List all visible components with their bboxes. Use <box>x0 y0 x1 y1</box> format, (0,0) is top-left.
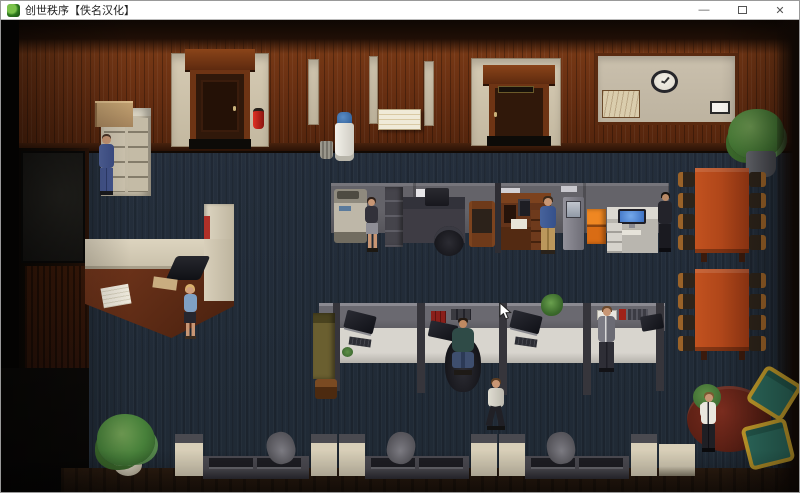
window-title: 创世秩序【佚名汉化】 <box>25 2 135 18</box>
fire-extinguisher[interactable] <box>253 108 264 129</box>
table2-leg-right <box>739 351 745 360</box>
close-button[interactable]: ✕ <box>761 1 799 19</box>
door2-knob <box>494 112 497 117</box>
npc-shoes <box>702 448 715 452</box>
npc-copier-woman[interactable] <box>362 197 382 254</box>
monitor-blue <box>618 209 646 224</box>
door1-mat <box>189 139 251 149</box>
npc-shoes <box>185 336 196 339</box>
desk-monitor-small <box>518 199 530 216</box>
olive-cabinet[interactable] <box>313 313 335 379</box>
bottom-monitors-2b <box>419 458 463 467</box>
wall-inset-3 <box>424 61 434 126</box>
npc-skirt <box>184 312 196 323</box>
npc-torso <box>184 294 197 312</box>
cardboard-box[interactable] <box>95 101 133 127</box>
npc-blue-suit-man[interactable] <box>95 134 119 196</box>
conf2-chair-l1[interactable] <box>678 273 695 288</box>
wall-sign[interactable] <box>710 101 730 114</box>
npc-head <box>705 394 713 402</box>
bottom-panel-3b <box>499 434 525 476</box>
file-cabinet-drawers-right <box>128 118 148 192</box>
conf1-chair-l1[interactable] <box>678 172 695 187</box>
npc-blonde-woman[interactable] <box>180 284 200 340</box>
notice-board[interactable] <box>378 109 421 130</box>
npc-torso <box>701 402 716 424</box>
npc-head <box>102 136 111 144</box>
bottom-monitors-1 <box>209 458 253 467</box>
npc-torso <box>488 388 504 407</box>
maximize-button[interactable] <box>723 1 761 19</box>
npc-torso <box>540 206 556 228</box>
npc-head <box>186 287 194 294</box>
white-desk-keyboard <box>621 229 641 235</box>
bottom-panel-2a <box>311 434 337 476</box>
cubicle-divider-2 <box>417 303 425 393</box>
app-icon <box>7 4 20 17</box>
reception-counter-return-top <box>204 239 234 301</box>
npc-torso <box>658 201 672 224</box>
office-chair-black[interactable] <box>434 226 464 256</box>
npc-seated-man[interactable] <box>449 318 477 380</box>
npc-gray-suit-man[interactable] <box>595 306 619 378</box>
conference-table-2[interactable] <box>695 269 749 351</box>
wood-stool[interactable] <box>315 379 337 399</box>
conf1-chair-r4[interactable] <box>749 235 766 250</box>
bottom-panel-2b <box>339 434 365 476</box>
orange-cabinet[interactable] <box>587 209 606 244</box>
bottom-panel-4 <box>631 434 657 476</box>
conf1-chair-r1[interactable] <box>749 172 766 187</box>
npc-shoes <box>454 370 472 375</box>
cubicle4-red-book <box>619 309 626 320</box>
npc-legs <box>452 352 474 368</box>
conf2-chair-l2[interactable] <box>678 294 695 309</box>
conference-table-1[interactable] <box>695 168 749 253</box>
conf2-chair-r4[interactable] <box>749 336 766 351</box>
conf2-chair-r1[interactable] <box>749 273 766 288</box>
npc-black-clothes[interactable] <box>656 192 674 253</box>
table1-leg-right <box>739 253 745 262</box>
plant-bottomleft-foliage[interactable] <box>97 414 155 466</box>
npc-torso <box>598 316 615 342</box>
door2-plaque <box>498 86 534 93</box>
npc-tie-man[interactable] <box>697 392 721 456</box>
npc-legs <box>599 342 614 368</box>
npc-shoes <box>100 191 113 195</box>
npc-head <box>459 320 467 328</box>
desk-papers <box>511 219 527 229</box>
npc-walking-man[interactable] <box>483 378 509 432</box>
npc-shoes <box>487 426 505 430</box>
wall-inset-1 <box>308 59 319 125</box>
door1-knob <box>233 106 236 111</box>
photocopier-panel <box>339 206 351 211</box>
npc-skirt <box>366 223 378 234</box>
npc-torso <box>365 206 378 223</box>
npc-head <box>368 199 375 206</box>
monitor-stand <box>629 224 635 228</box>
printer <box>425 188 449 206</box>
cubicle-divider-4 <box>583 303 591 395</box>
npc-torso <box>99 144 114 168</box>
npc-shoes <box>541 250 555 254</box>
bottom-panel-1 <box>175 434 203 476</box>
cursor <box>499 302 512 321</box>
npc-head <box>544 198 552 206</box>
cubicle1-plant <box>342 347 353 357</box>
minimize-button[interactable]: — <box>685 1 723 19</box>
conf1-chair-l2[interactable] <box>678 193 695 208</box>
npc-legs <box>702 424 715 448</box>
conf1-chair-r3[interactable] <box>749 214 766 229</box>
kiosk-screen <box>566 201 581 218</box>
wall-top-shadow <box>1 20 800 54</box>
title-bar[interactable]: 创世秩序【佚名汉化】 — ✕ <box>1 1 799 20</box>
game-window: 创世秩序【佚名汉化】 — ✕ <box>0 0 800 493</box>
wall-map[interactable] <box>602 90 640 118</box>
bottom-desk-corner <box>659 444 695 476</box>
npc-shoes <box>659 248 671 252</box>
conf1-chair-l4[interactable] <box>678 235 695 250</box>
maximize-icon <box>738 6 747 14</box>
bottom-panel-3a <box>471 434 497 476</box>
partition-plant <box>541 294 563 316</box>
white-drawer-unit <box>607 223 622 253</box>
wall-inset-2 <box>369 56 378 124</box>
npc-legs <box>100 168 113 191</box>
npc-shoes <box>599 368 614 372</box>
npc-legs <box>541 228 555 250</box>
conf2-chair-l3[interactable] <box>678 315 695 330</box>
wood-side-chair[interactable] <box>469 201 495 247</box>
wall-clock[interactable] <box>651 70 678 93</box>
conf2-chair-r3[interactable] <box>749 315 766 330</box>
npc-torso <box>452 328 474 352</box>
tall-cabinet[interactable] <box>385 187 403 247</box>
partition-sign-3 <box>561 186 577 192</box>
left-wall-board <box>21 151 85 263</box>
bottom-monitors-3b <box>579 458 623 467</box>
table1-leg-left <box>701 253 707 262</box>
photocopier-lid <box>337 191 359 199</box>
conf1-chair-l3[interactable] <box>678 214 695 229</box>
npc-leg-right <box>495 406 505 428</box>
npc-desk-man[interactable] <box>537 196 559 256</box>
door2-mat <box>487 136 551 146</box>
conf2-chair-r2[interactable] <box>749 294 766 309</box>
npc-head <box>662 194 669 201</box>
npc-legs <box>659 224 671 248</box>
npc-head <box>603 308 611 316</box>
npc-legs <box>368 234 377 248</box>
conf2-chair-l4[interactable] <box>678 336 695 351</box>
npc-legs <box>186 323 195 336</box>
door1-pediment <box>185 49 255 70</box>
trash-bin[interactable] <box>320 141 333 159</box>
npc-head <box>492 380 500 388</box>
npc-shoes <box>367 248 378 252</box>
water-cooler[interactable] <box>335 123 354 161</box>
game-viewport[interactable] <box>1 20 800 493</box>
door2-pediment <box>483 65 555 84</box>
conf1-chair-r2[interactable] <box>749 193 766 208</box>
table2-leg-left <box>701 351 707 360</box>
